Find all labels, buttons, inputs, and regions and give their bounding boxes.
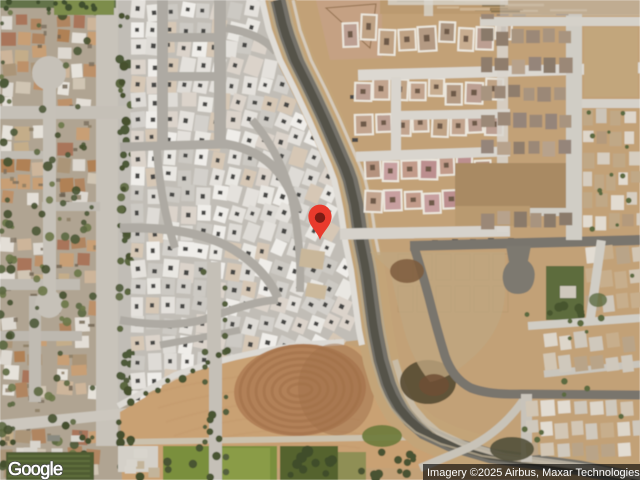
svg-text:Imagery ©2025 Airbus, Maxar Te: Imagery ©2025 Airbus, Maxar Technologies: [427, 467, 640, 479]
svg-text:Google: Google: [8, 459, 63, 479]
